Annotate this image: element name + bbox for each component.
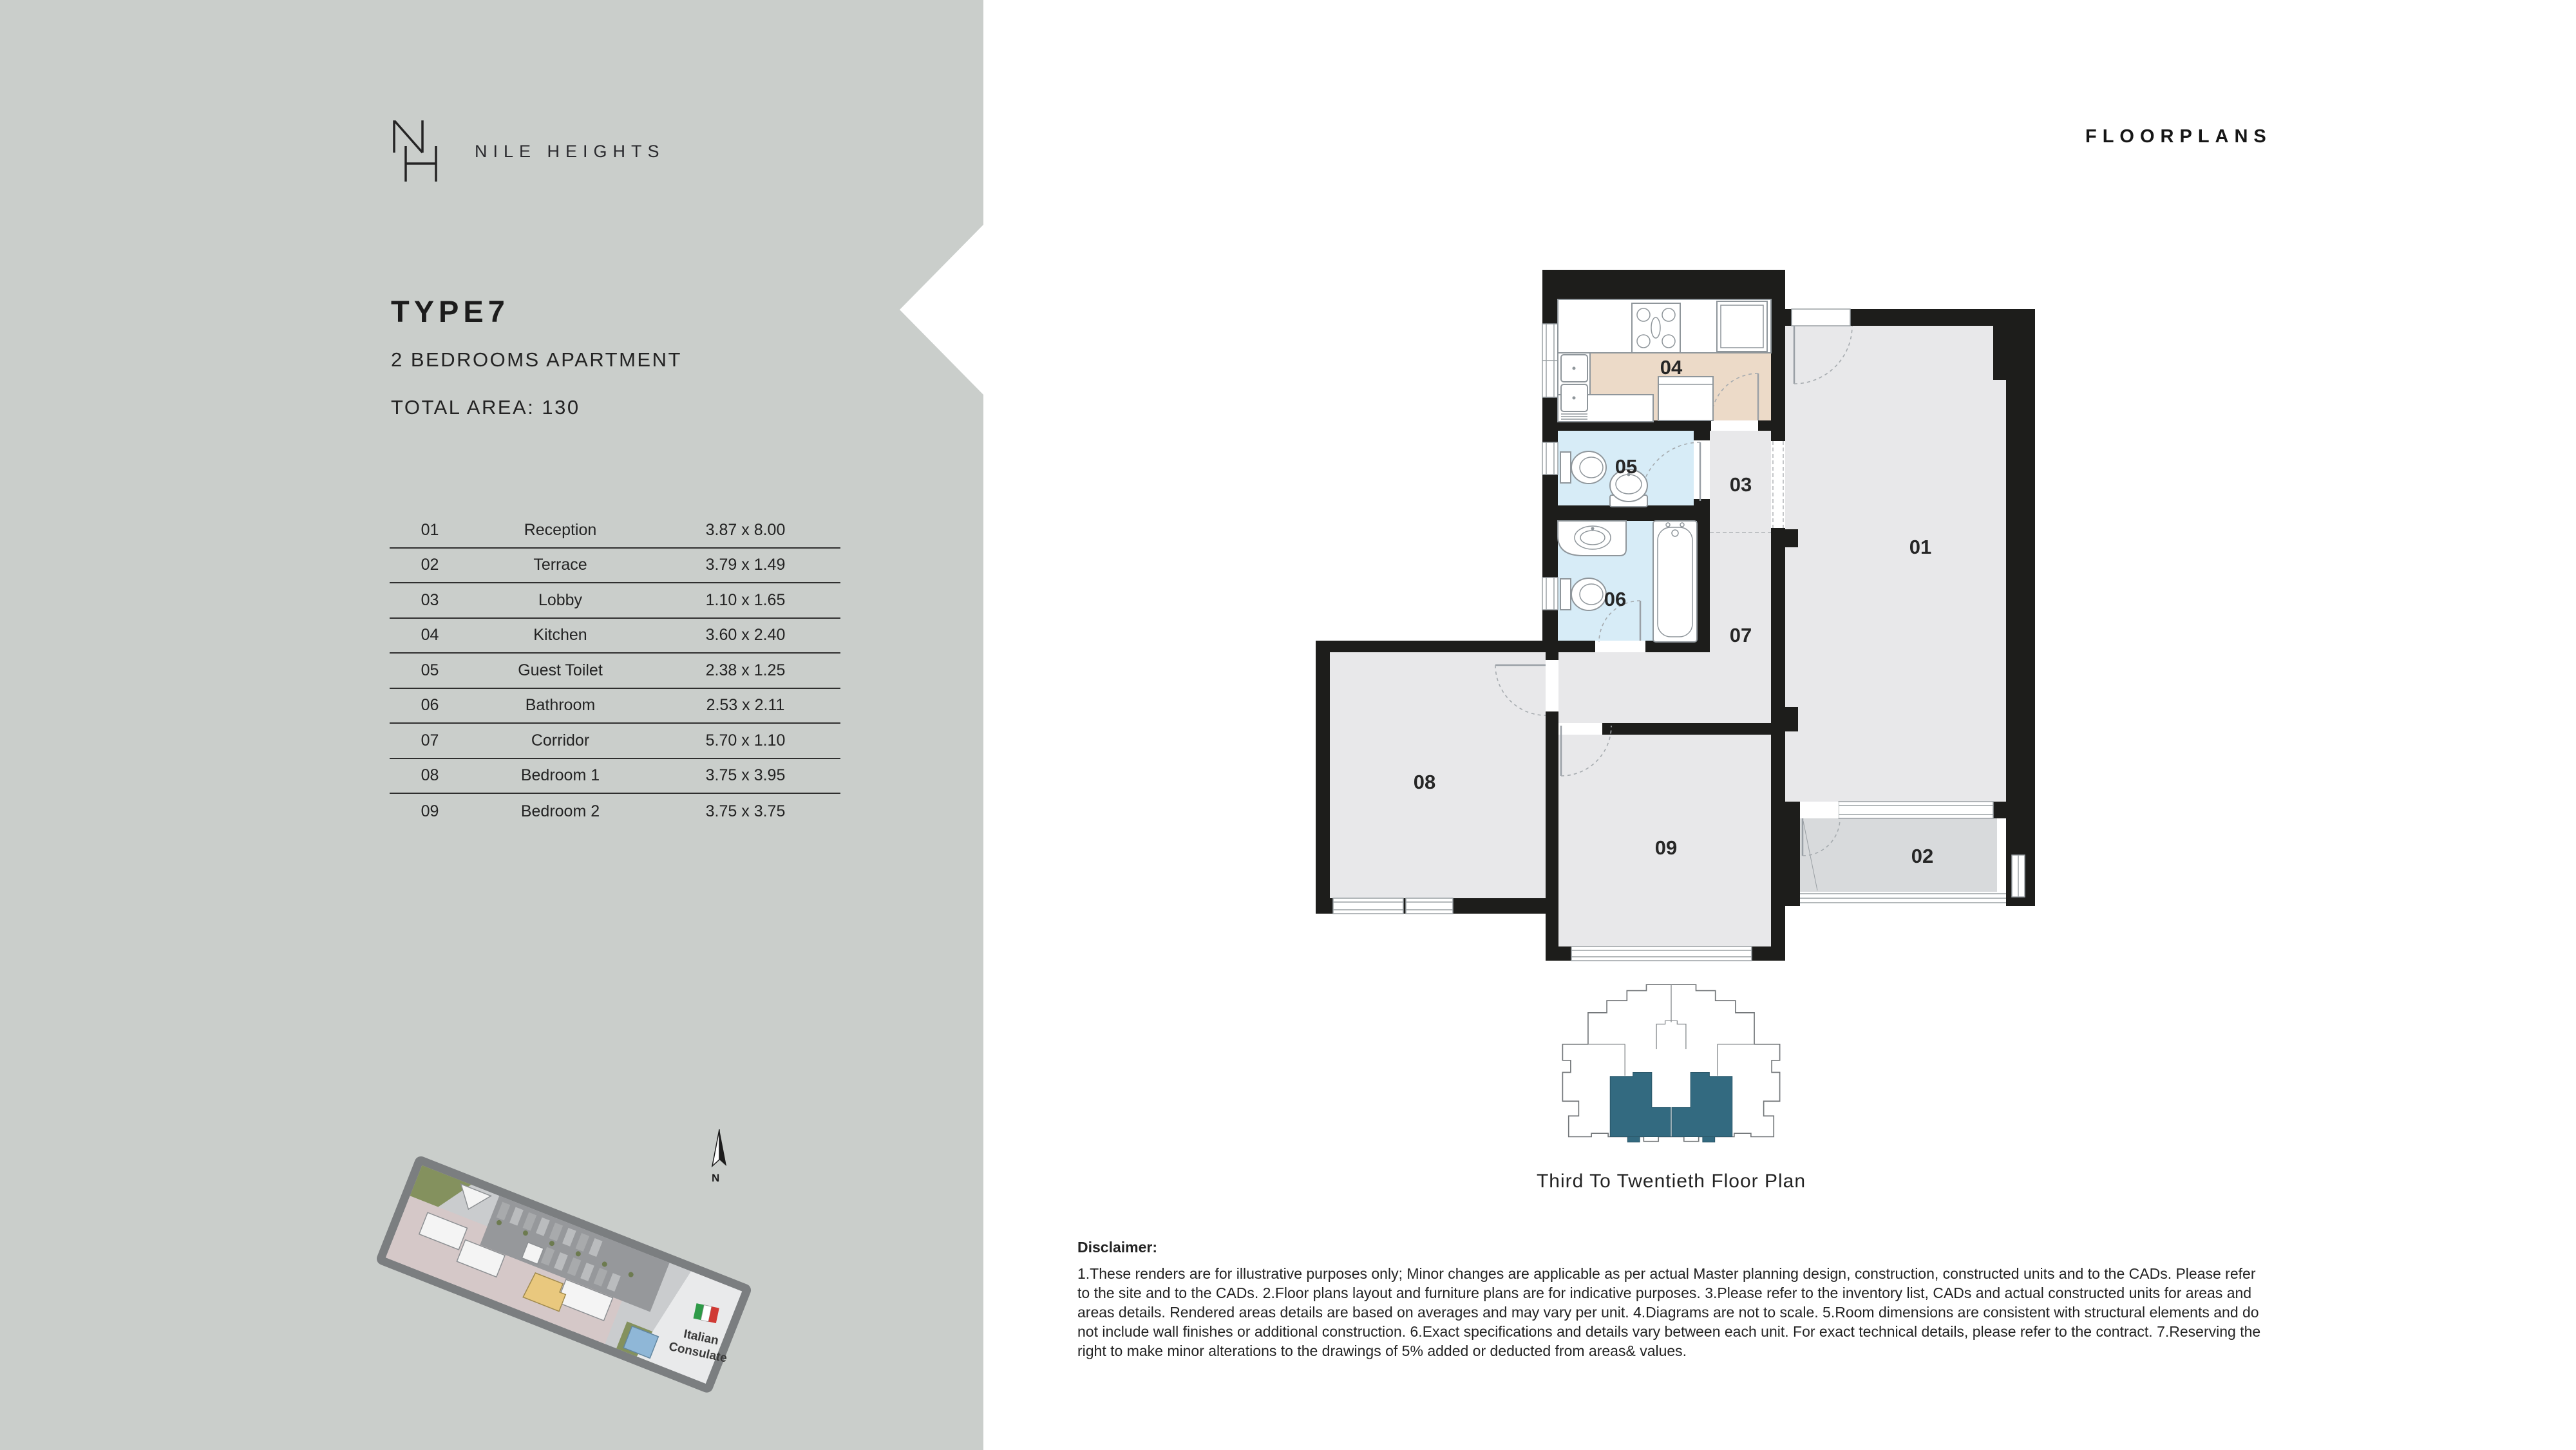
room-number: 02 xyxy=(390,556,470,574)
room-dimensions: 1.10 x 1.65 xyxy=(650,591,840,610)
room-number: 01 xyxy=(390,521,470,540)
table-row: 05 Guest Toilet 2.38 x 1.25 xyxy=(390,654,840,689)
stove-icon xyxy=(1632,303,1680,353)
room-number: 05 xyxy=(390,661,470,680)
room-bedroom1 xyxy=(1330,652,1546,898)
floor-plan-drawing: 01 02 03 04 05 06 07 08 09 xyxy=(1301,248,2048,963)
room-number: 09 xyxy=(390,802,470,821)
room-dimensions: 3.60 x 2.40 xyxy=(650,626,840,645)
room-dimensions: 5.70 x 1.10 xyxy=(650,731,840,750)
room-name: Bedroom 2 xyxy=(470,802,650,821)
floorplan-sheet: NILE HEIGHTS TYPE7 2 BEDROOMS APARTMENT … xyxy=(0,0,2576,1450)
rooms-table: 01 Reception 3.87 x 8.00 02 Terrace 3.79… xyxy=(390,513,840,829)
room-dimensions: 2.38 x 1.25 xyxy=(650,661,840,680)
room-06-label: 06 xyxy=(1604,588,1626,610)
disclaimer-block: Disclaimer: 1.These renders are for illu… xyxy=(1077,1239,2266,1361)
room-dimensions: 3.75 x 3.75 xyxy=(650,802,840,821)
page-title: FLOORPLANS xyxy=(2085,126,2272,147)
table-row: 04 Kitchen 3.60 x 2.40 xyxy=(390,619,840,654)
building-key-plan xyxy=(1546,982,1797,1146)
room-name: Bathroom xyxy=(470,696,650,715)
brand-name: NILE HEIGHTS xyxy=(475,142,665,162)
table-row: 07 Corridor 5.70 x 1.10 xyxy=(390,724,840,759)
disclaimer-heading: Disclaimer: xyxy=(1077,1239,2266,1256)
sidebar-notch-arrow xyxy=(900,225,983,395)
room-number: 06 xyxy=(390,696,470,715)
room-07-label: 07 xyxy=(1730,624,1752,646)
table-row: 02 Terrace 3.79 x 1.49 xyxy=(390,549,840,584)
disclaimer-body: 1.These renders are for illustrative pur… xyxy=(1077,1264,2266,1361)
total-area: TOTAL AREA: 130 xyxy=(391,396,580,419)
room-08-label: 08 xyxy=(1414,771,1435,793)
site-masterplan: Italian Consulate N xyxy=(367,1078,792,1400)
vanity-sink-icon xyxy=(1558,521,1626,556)
room-number: 03 xyxy=(390,591,470,610)
room-09-label: 09 xyxy=(1655,836,1677,859)
north-arrow-icon: N xyxy=(712,1129,726,1184)
toilet-icon xyxy=(1560,451,1606,484)
room-05-label: 05 xyxy=(1615,455,1637,478)
room-name: Kitchen xyxy=(470,626,650,645)
room-name: Bedroom 1 xyxy=(470,766,650,785)
room-name: Reception xyxy=(470,521,650,540)
room-name: Lobby xyxy=(470,591,650,610)
room-03-label: 03 xyxy=(1730,473,1752,496)
unit-type-title: TYPE7 xyxy=(391,294,509,329)
table-row: 06 Bathroom 2.53 x 2.11 xyxy=(390,689,840,724)
room-name: Corridor xyxy=(470,731,650,750)
room-corridor-hall xyxy=(1558,652,1771,723)
room-01-label: 01 xyxy=(1909,536,1931,558)
nh-monogram-logo-icon xyxy=(392,120,437,182)
room-number: 08 xyxy=(390,766,470,785)
table-row: 01 Reception 3.87 x 8.00 xyxy=(390,513,840,549)
room-04-label: 04 xyxy=(1660,356,1683,379)
floor-range-caption: Third To Twentieth Floor Plan xyxy=(1475,1171,1868,1192)
room-terrace xyxy=(1800,818,1997,892)
table-row: 09 Bedroom 2 3.75 x 3.75 xyxy=(390,794,840,829)
room-name: Guest Toilet xyxy=(470,661,650,680)
room-02-label: 02 xyxy=(1911,845,1933,867)
room-reception xyxy=(1785,326,2006,802)
table-row: 03 Lobby 1.10 x 1.65 xyxy=(390,583,840,619)
room-number: 04 xyxy=(390,626,470,645)
room-dimensions: 2.53 x 2.11 xyxy=(650,696,840,715)
room-dimensions: 3.79 x 1.49 xyxy=(650,556,840,574)
table-row: 08 Bedroom 1 3.75 x 3.95 xyxy=(390,759,840,795)
kitchen-sink-icon xyxy=(1561,355,1587,419)
north-label: N xyxy=(712,1172,719,1184)
unit-subtitle: 2 BEDROOMS APARTMENT xyxy=(391,348,682,372)
room-number: 07 xyxy=(390,731,470,750)
room-dimensions: 3.75 x 3.95 xyxy=(650,766,840,785)
bathtub-icon xyxy=(1653,521,1697,642)
room-dimensions: 3.87 x 8.00 xyxy=(650,521,840,540)
room-name: Terrace xyxy=(470,556,650,574)
bathroom-toilet-icon xyxy=(1560,578,1606,610)
